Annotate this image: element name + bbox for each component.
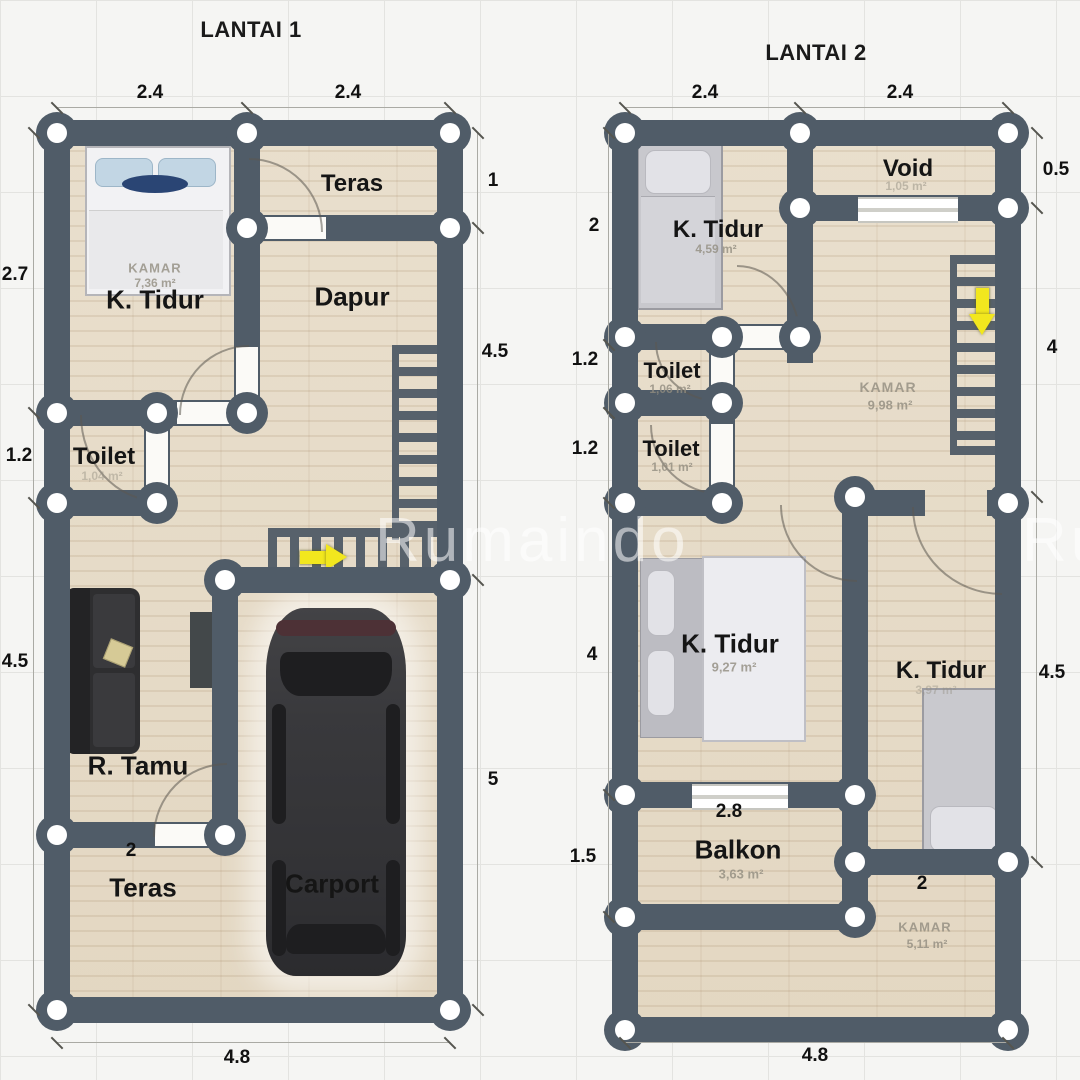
wall-node	[36, 482, 78, 524]
dimension-label: 1.2	[572, 349, 598, 371]
dimension-tick	[51, 1037, 64, 1050]
dimension-label: 2.4	[335, 82, 361, 104]
room-label: K. Tidur	[896, 657, 986, 685]
room-area-label: 3,97 m²	[915, 683, 956, 697]
wall-node	[429, 207, 471, 249]
room-label: K. Tidur	[673, 216, 763, 244]
wall-node	[701, 382, 743, 424]
room-area-label: 3,63 m²	[719, 867, 764, 882]
dimension-tick	[472, 222, 485, 235]
wall-node	[987, 187, 1029, 229]
dimension-label: 4	[1047, 337, 1058, 359]
floor-plan-title: LANTAI 1	[200, 17, 301, 43]
room-label: K. Tidur	[681, 629, 779, 660]
dimension-line	[625, 1042, 1008, 1043]
dimension-label: 2.7	[2, 264, 28, 286]
room-label: Toilet	[73, 443, 135, 471]
wall-node	[604, 382, 646, 424]
dimension-label: 2.4	[692, 82, 718, 104]
watermark: Rumaindo	[1022, 505, 1080, 576]
wall-node	[701, 316, 743, 358]
car-side-window	[272, 704, 286, 824]
dimension-label: 1.2	[572, 438, 598, 460]
wall-node	[429, 989, 471, 1031]
dimension-label: 0.5	[1043, 159, 1069, 181]
wall-node	[834, 774, 876, 816]
room-label: R. Tamu	[88, 751, 189, 782]
dimension-line	[625, 107, 1008, 108]
dimension-line	[33, 133, 34, 1010]
wall	[44, 997, 463, 1023]
car-windshield	[280, 652, 392, 696]
dimension-label: 2	[917, 873, 928, 895]
dimension-label: 2.4	[887, 82, 913, 104]
stairs-up-arrow-icon	[300, 551, 326, 564]
room-area-label: 5,11 m²	[907, 937, 948, 951]
wall-node	[834, 896, 876, 938]
dimension-line	[57, 1042, 450, 1043]
wall-node	[987, 112, 1029, 154]
wall-node	[204, 559, 246, 601]
sofa-cushion	[93, 673, 135, 747]
void-railing-window	[858, 197, 958, 223]
room-area-label: 4,59 m²	[695, 242, 736, 256]
room-label: Carport	[285, 869, 379, 900]
wall-node	[204, 814, 246, 856]
dimension-label: 4.8	[224, 1047, 250, 1069]
car-side-window	[386, 860, 400, 956]
watermark: Rumaindo	[375, 505, 690, 576]
wall	[612, 904, 868, 930]
wall-node	[36, 392, 78, 434]
wall-node	[834, 841, 876, 883]
room-label: Dapur	[314, 282, 389, 313]
dimension-label: 2.8	[716, 801, 742, 823]
pillow	[647, 650, 675, 716]
wall-node	[36, 989, 78, 1031]
dimension-label: 4.8	[802, 1045, 828, 1067]
wall-node	[36, 814, 78, 856]
dimension-label: 1.5	[570, 846, 596, 868]
room-area-label: KAMAR	[859, 379, 916, 395]
wall-node	[136, 482, 178, 524]
room-label: Toilet	[643, 358, 700, 384]
dimension-line	[57, 107, 450, 108]
room-area-label: 1,04 m²	[81, 469, 122, 483]
dimension-tick	[1031, 127, 1044, 140]
room-label: K. Tidur	[106, 285, 204, 316]
pillow	[645, 150, 711, 194]
dimension-tick	[472, 127, 485, 140]
wall-node	[136, 392, 178, 434]
dimension-tick	[1031, 202, 1044, 215]
dimension-label: 2.4	[137, 82, 163, 104]
pillow	[930, 806, 998, 852]
floor-plan-title: LANTAI 2	[765, 40, 866, 66]
dimension-label: 4.5	[1039, 662, 1065, 684]
car-side-window	[386, 704, 400, 824]
wall-node	[226, 392, 268, 434]
car-hood-trim	[276, 620, 396, 636]
wall	[612, 1017, 1021, 1043]
dimension-tick	[1031, 856, 1044, 869]
stairs-rail	[950, 255, 957, 455]
room-area-label: 9,98 m²	[868, 398, 913, 413]
stairs-down-arrow-icon	[969, 314, 995, 335]
floor-plan-canvas: LANTAI 1	[0, 0, 1080, 1080]
room-area-label: 1,06 m²	[649, 382, 690, 396]
wall-node	[36, 112, 78, 154]
car-side-window	[272, 860, 286, 956]
dimension-label: 5	[488, 769, 499, 791]
room-area-label: KAMAR	[898, 920, 951, 935]
wall-node	[779, 316, 821, 358]
pillow	[647, 570, 675, 636]
sofa	[66, 588, 140, 754]
room-label: Teras	[321, 170, 383, 198]
room-area-label: KAMAR	[128, 261, 181, 276]
bed-bolster	[122, 175, 188, 193]
room-label: Toilet	[642, 436, 699, 462]
wall-node	[779, 187, 821, 229]
room-label: Balkon	[695, 835, 782, 866]
dimension-label: 1	[488, 170, 499, 192]
dimension-tick	[472, 1004, 485, 1017]
room-area-label: 1,01 m²	[651, 460, 692, 474]
wall-node	[226, 207, 268, 249]
wall-node	[226, 112, 268, 154]
dimension-label: 4.5	[2, 651, 28, 673]
room-label: Teras	[109, 873, 176, 904]
wall-node	[429, 112, 471, 154]
dimension-tick	[1031, 491, 1044, 504]
dimension-label: 2	[589, 215, 600, 237]
wall-node	[834, 476, 876, 518]
wall-node	[701, 482, 743, 524]
room-area-label: 9,27 m²	[712, 660, 757, 675]
wall-node	[987, 841, 1029, 883]
dimension-tick	[444, 1037, 457, 1050]
wall	[44, 120, 70, 1023]
room-area-label: 1,05 m²	[885, 179, 926, 193]
wall-node	[604, 316, 646, 358]
car-rear-window	[286, 924, 386, 954]
dimension-label: 4	[587, 644, 598, 666]
wall-node	[779, 112, 821, 154]
dimension-label: 1.2	[6, 445, 32, 467]
stairs-down-arrow-icon	[976, 288, 989, 314]
car	[266, 608, 406, 976]
dimension-label: 4.5	[482, 341, 508, 363]
dimension-label: 2	[126, 840, 137, 862]
